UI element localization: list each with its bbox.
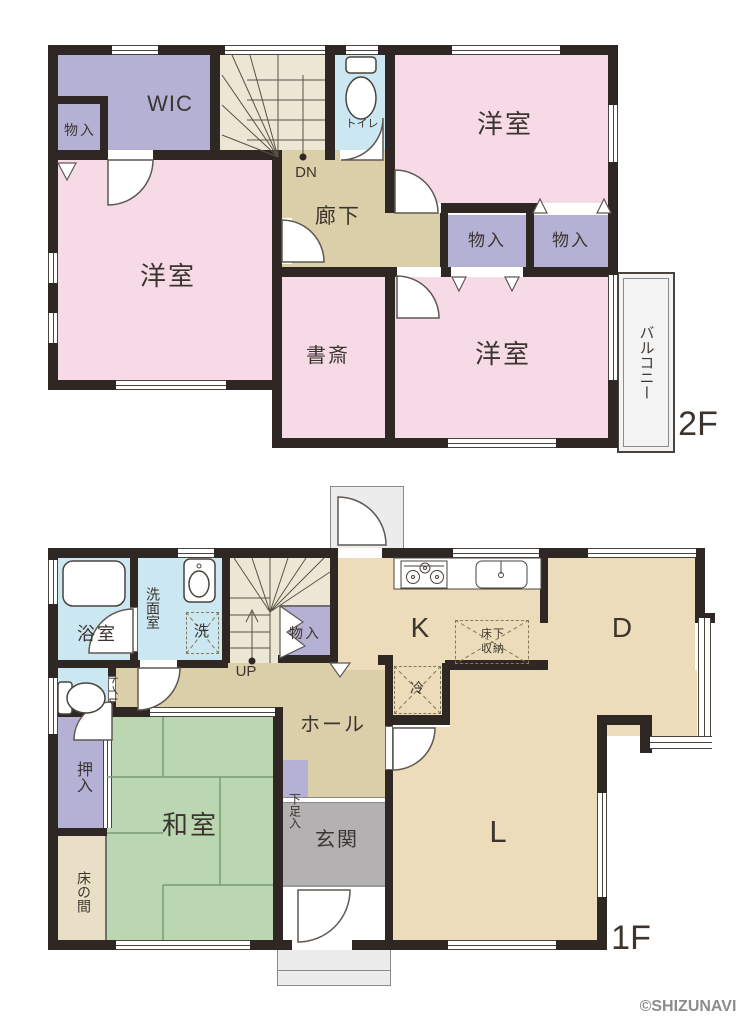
- bay-window: [698, 618, 711, 746]
- wall: [278, 655, 335, 663]
- wall: [222, 548, 230, 663]
- entrance-porch: [277, 948, 391, 986]
- room-label-underfloor-storage: 床下収納: [479, 625, 507, 659]
- room-corridor-2f-east: [385, 213, 448, 267]
- room-label-closet-nw: 物入: [56, 120, 104, 140]
- window: [48, 678, 58, 734]
- room-label-dining: D: [600, 610, 644, 646]
- window-to-balcony: [608, 275, 618, 380]
- wall: [273, 715, 283, 940]
- wall: [325, 45, 335, 160]
- wall: [442, 663, 450, 720]
- room-label-entrance: 玄関: [311, 827, 363, 853]
- sliding-door: [150, 707, 275, 717]
- room-label-balcony: バルコニー: [637, 286, 655, 438]
- window: [448, 940, 556, 950]
- room-label-japanese-room: 和室: [152, 810, 228, 842]
- wall: [48, 548, 58, 950]
- closet-edge: [280, 605, 330, 607]
- room-label-fridge: 冷: [406, 678, 430, 698]
- room-label-bedroom-se: 洋室: [461, 338, 545, 372]
- door-leaf: [130, 607, 138, 652]
- wall: [58, 96, 104, 104]
- door-opening: [537, 203, 608, 213]
- floorplan-canvas: WIC 物入 トイレ 洋室 廊下 DN 洋室 物入 物入 書斎 洋室 バルコニー…: [0, 0, 751, 1024]
- room-label-toilet-1f: トイレ: [104, 666, 120, 714]
- door-opening: [397, 203, 441, 213]
- door-opening: [451, 267, 523, 277]
- room-label-living: L: [478, 810, 518, 854]
- room-label-washroom: 洗面室: [144, 562, 162, 654]
- wall: [272, 150, 282, 448]
- wall: [695, 548, 705, 623]
- room-label-hall: ホール: [299, 712, 367, 738]
- window: [448, 438, 556, 448]
- window: [48, 253, 58, 283]
- door-opening: [108, 150, 153, 160]
- room-label-bedroom-ne: 洋室: [463, 108, 547, 142]
- entrance-edge: [283, 885, 385, 887]
- window: [48, 313, 58, 343]
- door-opening: [292, 940, 352, 950]
- room-label-toilet-2f: トイレ: [336, 118, 388, 132]
- porch-step: [278, 970, 390, 971]
- window: [453, 548, 539, 558]
- room-label-washer: 洗: [190, 622, 215, 642]
- window: [588, 548, 696, 558]
- window: [225, 45, 325, 55]
- room-label-study: 書斎: [304, 344, 352, 368]
- room-label-corridor: 廊下: [310, 204, 366, 230]
- stairs-dn-label: DN: [288, 164, 324, 182]
- room-stairs-2f: [220, 55, 325, 160]
- wall: [390, 715, 450, 725]
- room-label-kitchen: K: [400, 610, 440, 646]
- door-opening: [397, 267, 441, 277]
- sliding-door: [103, 722, 112, 828]
- bay-window: [650, 736, 712, 749]
- credit-watermark: ©SHIZUNAVI: [628, 998, 748, 1020]
- door-arc-front-door: [298, 890, 350, 942]
- window: [452, 45, 560, 55]
- wall: [385, 267, 395, 448]
- stairs-up-label: UP: [226, 663, 266, 681]
- wall: [210, 45, 220, 160]
- door-leaf: [385, 726, 393, 770]
- room-label-closet-mid-left: 物入: [455, 229, 519, 253]
- wall: [385, 663, 393, 940]
- wall: [177, 660, 228, 668]
- wall: [540, 548, 548, 623]
- wall: [48, 828, 107, 836]
- wall: [272, 438, 618, 448]
- wall: [48, 660, 140, 668]
- room-toilet-1f: [58, 668, 108, 712]
- room-label-closet-understairs: 物入: [284, 624, 326, 642]
- tokonoma-edge: [105, 836, 107, 940]
- window: [597, 793, 607, 897]
- door-opening: [338, 548, 382, 558]
- door-opening: [140, 660, 177, 668]
- back-door-landing: [330, 486, 404, 550]
- door-opening: [282, 218, 292, 264]
- window: [116, 940, 250, 950]
- room-label-closet-mid-right: 物入: [539, 229, 603, 253]
- room-label-shoe-cabinet: 下足入: [287, 766, 302, 856]
- room-label-wic: WIC: [130, 90, 210, 118]
- room-label-tokonoma: 床の間: [74, 846, 94, 938]
- floor-label-2f: 2F: [674, 404, 722, 444]
- wall: [48, 150, 272, 160]
- floor-label-1f: 1F: [608, 918, 654, 958]
- room-toilet-2f: [335, 55, 388, 160]
- window: [608, 105, 618, 162]
- door-opening: [340, 150, 384, 160]
- window: [48, 560, 58, 604]
- room-passage: [450, 670, 548, 727]
- window: [346, 45, 378, 55]
- window: [112, 45, 158, 55]
- room-label-bedroom-w: 洋室: [126, 260, 210, 294]
- room-label-bath: 浴室: [70, 624, 124, 646]
- room-label-oshiire: 押入: [72, 746, 92, 808]
- window: [178, 548, 214, 558]
- window: [116, 380, 226, 390]
- wall: [330, 548, 338, 663]
